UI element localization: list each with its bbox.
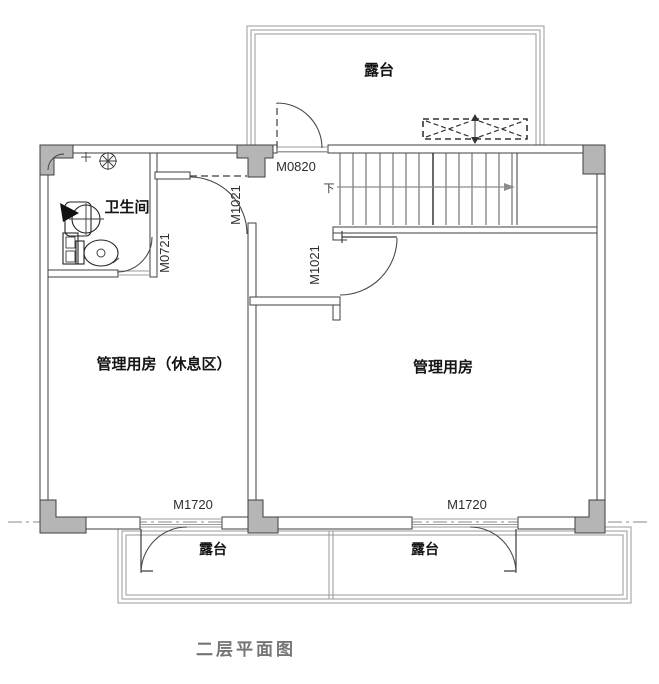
label-terrace-top: 露台 (364, 61, 394, 79)
column-bottom-middle (248, 500, 278, 533)
sink-fixture (60, 202, 104, 236)
trellis-arrow-down-icon (471, 137, 479, 144)
stair-landing-edge (333, 227, 597, 240)
wall-vestibule-stub (333, 305, 340, 320)
terrace-bottom-outline (118, 527, 631, 603)
door-m0721 (117, 237, 152, 275)
label-terrace-bottom-right: 露台 (411, 541, 439, 557)
staircase: 下 (324, 153, 598, 240)
wall-top-right (328, 145, 605, 153)
trellis-arrow-up-icon (471, 114, 479, 121)
label-right-room: 管理用房 (413, 358, 473, 376)
column-top-left (40, 145, 73, 175)
door-m1021-lower-swing (340, 238, 397, 295)
drawing-title: 二层平面图 (196, 640, 296, 659)
trellis-symbol (423, 114, 527, 144)
column-bottom-left (40, 500, 86, 533)
label-bathroom: 卫生间 (104, 198, 149, 216)
stair-treads (340, 153, 512, 225)
stair-arrow-icon (504, 183, 515, 191)
door-label-m0721: M0721 (157, 233, 172, 273)
stair-down-label: 下 (324, 183, 335, 195)
wall-room-divider (248, 223, 256, 517)
door-label-m1720-left: M1720 (173, 497, 213, 512)
terrace-top-outline (247, 26, 544, 152)
wall-right (597, 145, 605, 533)
floor-plan-page: 下 M0820 M1021 M1021 M0721 (0, 0, 659, 684)
wall-bathroom-south (48, 270, 118, 277)
door-label-m1720-right: M1720 (447, 497, 487, 512)
door-label-m1021-lower: M1021 (307, 245, 322, 285)
label-terrace-bottom-left: 露台 (199, 541, 227, 557)
column-top-middle (237, 145, 273, 177)
door-m1720-left-swing (141, 527, 187, 573)
room-labels: 露台 卫生间 管理用房（休息区） 管理用房 露台 露台 (96, 61, 473, 557)
door-m1720-right-swing (470, 527, 516, 573)
column-bottom-right (575, 500, 605, 533)
floor-drain-icon (99, 152, 117, 170)
toilet-fixture (76, 240, 119, 266)
door-label-m0820: M0820 (276, 159, 316, 174)
floor-plan-canvas: 下 M0820 M1021 M1021 M0721 (0, 0, 659, 684)
wall-left (40, 145, 48, 533)
door-label-m1021-upper: M1021 (228, 185, 243, 225)
label-left-room: 管理用房（休息区） (96, 355, 231, 373)
door-m0820-swing (277, 103, 322, 148)
door-m0820 (277, 103, 328, 152)
wall-vestibule-south (250, 297, 340, 305)
wall-hall-stub (155, 172, 190, 179)
door-m1021-lower (340, 231, 397, 295)
column-top-right (583, 145, 605, 174)
door-m0721-swing (117, 237, 152, 272)
